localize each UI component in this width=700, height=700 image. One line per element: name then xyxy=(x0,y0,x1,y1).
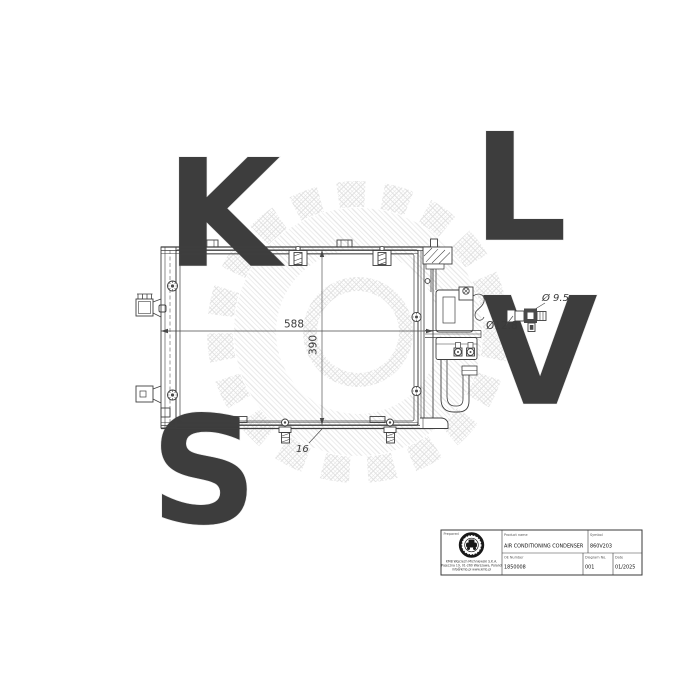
bolt-icon xyxy=(454,343,462,357)
watermark-letter-k: K xyxy=(165,128,286,302)
screw-icon xyxy=(168,281,178,291)
date-label: Date xyxy=(615,556,623,560)
screw-icon xyxy=(412,386,421,395)
diagram-no-label: Diagram No. xyxy=(585,556,606,560)
date-value: 01/2025 xyxy=(615,565,635,571)
dim-width: 588 xyxy=(161,319,433,334)
bolt-icon xyxy=(463,288,469,294)
dim-height-label: 390 xyxy=(308,335,320,355)
dim-port-large-label: Ø12.8 xyxy=(486,320,518,332)
oe-number-label: OE Number xyxy=(504,556,524,560)
company-logo-seal xyxy=(461,534,483,556)
technical-drawing-canvas: S K V L xyxy=(0,0,700,700)
product-name-value: AIR CONDITIONING CONDENSER xyxy=(504,544,584,550)
screw-icon xyxy=(168,390,178,400)
left-upper-bracket xyxy=(136,294,161,317)
dim-port-small-label: Ø 9.5 xyxy=(541,292,569,304)
screw-icon xyxy=(412,312,421,321)
watermark-letter-l: L xyxy=(472,102,568,276)
title-block: Prepared KMB Wojciech Michniewski S.K.A.… xyxy=(441,530,642,575)
drawing-page: S K V L xyxy=(0,0,700,700)
symbol-label: Symbol xyxy=(590,533,603,537)
prepared-label: Prepared xyxy=(444,532,459,536)
watermark-letter-s: S xyxy=(150,385,258,559)
symbol-value: 860V203 xyxy=(590,544,612,550)
watermark-letter-v: V xyxy=(482,266,598,440)
company-address-line3: info@kmb.pl www.kmb.pl xyxy=(452,568,491,572)
oe-number-value: 1850008 xyxy=(504,565,526,571)
dim-width-label: 588 xyxy=(284,319,304,331)
diagram-no-value: 001 xyxy=(585,565,594,571)
bolt-icon xyxy=(467,343,475,357)
product-name-label: Product name xyxy=(504,533,528,537)
dim-depth-label: 16 xyxy=(296,444,309,455)
